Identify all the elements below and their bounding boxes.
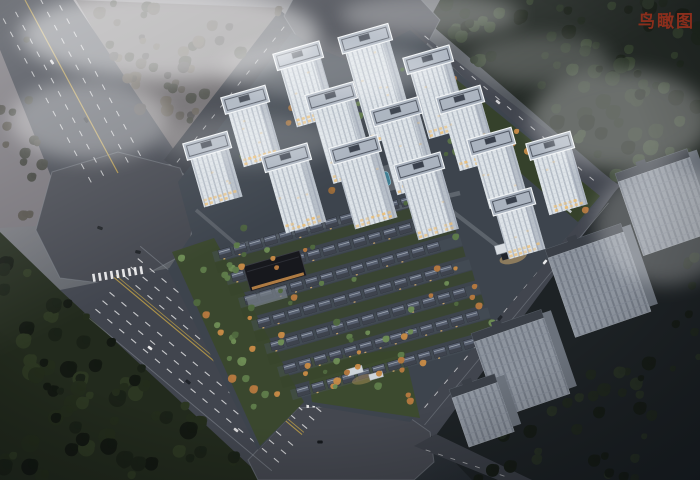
birdseye-aerial-render: 鸟瞰图 <box>0 0 700 480</box>
vignette-overlay <box>0 0 700 480</box>
birdseye-render-page: 鸟瞰图 <box>0 0 700 480</box>
view-label: 鸟瞰图 <box>638 11 695 32</box>
